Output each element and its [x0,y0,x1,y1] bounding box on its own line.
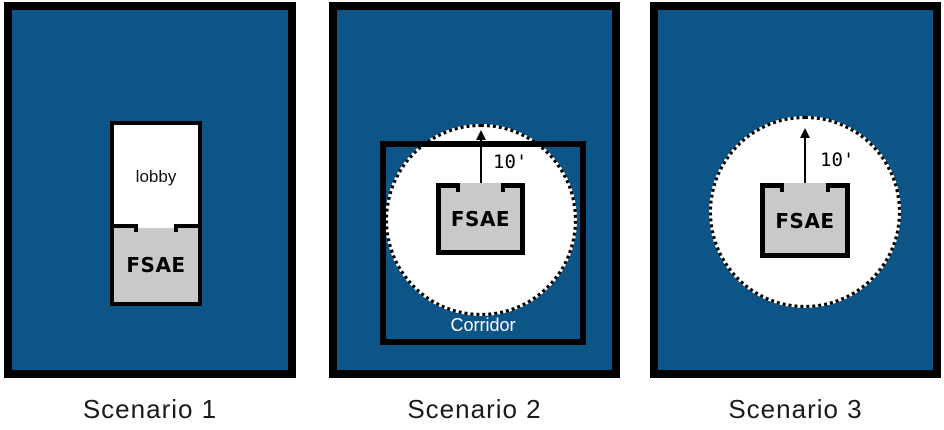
fsae-box: FSAE [436,183,525,255]
lobby-label: lobby [136,167,177,187]
lobby-area: lobby [114,125,198,228]
fsae-wall-right [520,183,525,255]
scenario-1-caption: Scenario 1 [4,394,296,425]
fsae-wall-bottom [436,250,525,255]
scenario-2-floorplan: FSAE 10' Corridor [329,2,620,378]
scenario-1-room-outline: lobby FSAE [110,121,202,306]
arrow-up-icon [800,128,810,138]
fsae-box: FSAE [760,183,850,258]
fsae-wall-left [760,183,765,258]
fsae-opening-tab-left [436,183,460,188]
distance-arrow [475,130,487,183]
fsae-wall-bottom [760,253,850,258]
fsae-label: FSAE [126,253,185,277]
door-opening-wall-tab-right [174,224,198,228]
distance-label: 10' [493,151,527,173]
fsae-label: FSAE [775,209,834,233]
scenario-2-caption: Scenario 2 [329,394,620,425]
corridor-label: Corridor [380,315,586,336]
fsae-opening-tab-right [826,183,850,188]
arrow-up-icon [476,130,486,140]
distance-label: 10' [820,149,854,171]
scenario-1-floorplan: lobby FSAE [4,2,296,378]
fsae-label: FSAE [451,207,510,231]
scenario-3-caption: Scenario 3 [650,394,941,425]
fsae-wall-right [845,183,850,258]
distance-arrow [799,128,811,183]
door-opening-wall-tab-left [114,224,138,228]
fsae-opening-tab-left [760,183,784,188]
arrow-line [804,138,806,183]
fsae-room: FSAE [114,228,198,302]
fsae-wall-left [436,183,441,255]
fsae-opening-tab-right [501,183,525,188]
scenario-3-floorplan: FSAE 10' [650,2,941,378]
arrow-line [480,140,482,183]
